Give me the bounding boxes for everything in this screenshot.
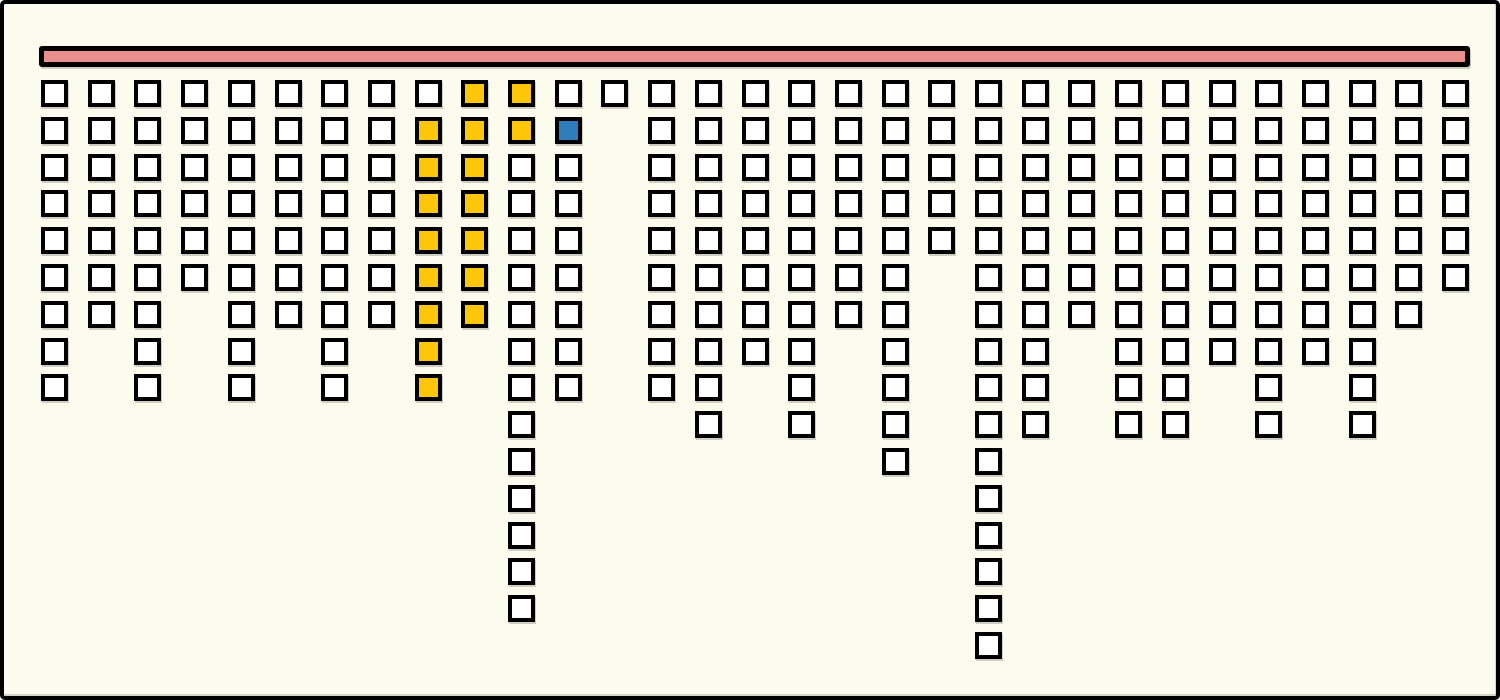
unit-square-col1-row5 (41, 227, 68, 254)
unit-square-col23-row3 (1068, 154, 1095, 181)
unit-square-col18-row5 (835, 227, 862, 254)
unit-square-col25-row9 (1162, 374, 1189, 401)
unit-square-col24-row2 (1115, 117, 1142, 144)
unit-square-col29-row4 (1349, 190, 1376, 217)
unit-square-col21-row16 (975, 632, 1002, 659)
unit-square-col24-row9 (1115, 374, 1142, 401)
unit-square-col6-row3 (275, 154, 302, 181)
unit-square-col29-row2 (1349, 117, 1376, 144)
unit-square-col7-row2 (321, 117, 348, 144)
unit-square-col22-row1 (1022, 80, 1049, 107)
unit-square-col26-row3 (1209, 154, 1236, 181)
unit-square-col19-row2 (882, 117, 909, 144)
unit-square-col7-row3 (321, 154, 348, 181)
unit-square-col25-row6 (1162, 264, 1189, 291)
unit-square-col17-row4 (788, 190, 815, 217)
unit-square-col9-row7 (415, 301, 442, 328)
unit-square-col28-row6 (1302, 264, 1329, 291)
unit-square-col7-row6 (321, 264, 348, 291)
unit-square-col24-row10 (1115, 411, 1142, 438)
unit-square-col8-row5 (368, 227, 395, 254)
unit-square-col15-row7 (695, 301, 722, 328)
unit-square-col5-row5 (228, 227, 255, 254)
unit-square-col12-row2 (555, 117, 582, 144)
unit-square-col3-row7 (134, 301, 161, 328)
unit-square-col17-row8 (788, 338, 815, 365)
unit-square-col21-row13 (975, 522, 1002, 549)
unit-square-col18-row2 (835, 117, 862, 144)
unit-square-col16-row5 (742, 227, 769, 254)
unit-square-col27-row7 (1255, 301, 1282, 328)
unit-square-col11-row8 (508, 338, 535, 365)
unit-square-col20-row5 (928, 227, 955, 254)
unit-square-col18-row6 (835, 264, 862, 291)
unit-square-col23-row5 (1068, 227, 1095, 254)
unit-square-col1-row7 (41, 301, 68, 328)
unit-square-col29-row7 (1349, 301, 1376, 328)
unit-square-col21-row1 (975, 80, 1002, 107)
unit-square-col13-row1 (601, 80, 628, 107)
unit-square-col2-row2 (88, 117, 115, 144)
unit-square-col11-row5 (508, 227, 535, 254)
unit-square-col10-row1 (461, 80, 488, 107)
unit-square-col19-row9 (882, 374, 909, 401)
unit-square-col3-row4 (134, 190, 161, 217)
unit-square-col9-row3 (415, 154, 442, 181)
unit-square-col24-row8 (1115, 338, 1142, 365)
unit-square-col5-row9 (228, 374, 255, 401)
unit-square-col27-row8 (1255, 338, 1282, 365)
unit-square-col3-row3 (134, 154, 161, 181)
unit-square-col16-row4 (742, 190, 769, 217)
unit-square-col19-row11 (882, 448, 909, 475)
unit-square-col22-row2 (1022, 117, 1049, 144)
unit-square-col19-row5 (882, 227, 909, 254)
unit-square-col9-row5 (415, 227, 442, 254)
unit-square-col14-row5 (648, 227, 675, 254)
unit-square-col29-row3 (1349, 154, 1376, 181)
unit-square-col1-row9 (41, 374, 68, 401)
unit-square-col26-row2 (1209, 117, 1236, 144)
unit-square-col22-row5 (1022, 227, 1049, 254)
unit-square-col27-row4 (1255, 190, 1282, 217)
unit-square-col17-row3 (788, 154, 815, 181)
unit-square-col21-row8 (975, 338, 1002, 365)
unit-square-col19-row6 (882, 264, 909, 291)
unit-square-col8-row2 (368, 117, 395, 144)
unit-square-col2-row1 (88, 80, 115, 107)
unit-square-col23-row4 (1068, 190, 1095, 217)
unit-square-col25-row8 (1162, 338, 1189, 365)
unit-square-col19-row10 (882, 411, 909, 438)
unit-square-col25-row1 (1162, 80, 1189, 107)
unit-square-col20-row3 (928, 154, 955, 181)
unit-square-col11-row12 (508, 485, 535, 512)
unit-square-col1-row8 (41, 338, 68, 365)
unit-square-col15-row5 (695, 227, 722, 254)
unit-square-col12-row8 (555, 338, 582, 365)
unit-square-col10-row4 (461, 190, 488, 217)
unit-square-col12-row5 (555, 227, 582, 254)
unit-square-col22-row3 (1022, 154, 1049, 181)
unit-square-col17-row10 (788, 411, 815, 438)
unit-square-col18-row1 (835, 80, 862, 107)
unit-square-col31-row2 (1442, 117, 1469, 144)
unit-square-col9-row8 (415, 338, 442, 365)
unit-square-col5-row6 (228, 264, 255, 291)
unit-square-col25-row3 (1162, 154, 1189, 181)
unit-square-col15-row8 (695, 338, 722, 365)
unit-square-col17-row1 (788, 80, 815, 107)
unit-square-col28-row2 (1302, 117, 1329, 144)
unit-square-col15-row10 (695, 411, 722, 438)
unit-square-col29-row8 (1349, 338, 1376, 365)
unit-square-col24-row7 (1115, 301, 1142, 328)
unit-square-col28-row3 (1302, 154, 1329, 181)
unit-square-col22-row8 (1022, 338, 1049, 365)
unit-square-col24-row5 (1115, 227, 1142, 254)
unit-square-col21-row5 (975, 227, 1002, 254)
unit-square-col21-row14 (975, 558, 1002, 585)
unit-square-col28-row8 (1302, 338, 1329, 365)
header-bar (39, 46, 1470, 67)
unit-square-col27-row6 (1255, 264, 1282, 291)
unit-square-col15-row2 (695, 117, 722, 144)
unit-square-col21-row6 (975, 264, 1002, 291)
unit-square-col24-row6 (1115, 264, 1142, 291)
unit-square-col31-row5 (1442, 227, 1469, 254)
unit-square-col5-row7 (228, 301, 255, 328)
unit-square-col21-row9 (975, 374, 1002, 401)
unit-square-col23-row7 (1068, 301, 1095, 328)
unit-square-col21-row2 (975, 117, 1002, 144)
unit-square-col19-row3 (882, 154, 909, 181)
unit-square-col5-row8 (228, 338, 255, 365)
unit-square-col21-row7 (975, 301, 1002, 328)
unit-square-col16-row2 (742, 117, 769, 144)
unit-square-col14-row4 (648, 190, 675, 217)
unit-square-col23-row2 (1068, 117, 1095, 144)
unit-square-col14-row6 (648, 264, 675, 291)
unit-square-col19-row4 (882, 190, 909, 217)
unit-square-col30-row7 (1395, 301, 1422, 328)
unit-square-col25-row7 (1162, 301, 1189, 328)
unit-square-col12-row3 (555, 154, 582, 181)
unit-square-col11-row1 (508, 80, 535, 107)
unit-square-col20-row4 (928, 190, 955, 217)
unit-square-col4-row3 (181, 154, 208, 181)
unit-square-col5-row3 (228, 154, 255, 181)
unit-square-col5-row4 (228, 190, 255, 217)
unit-square-col27-row5 (1255, 227, 1282, 254)
unit-square-col3-row6 (134, 264, 161, 291)
unit-square-col14-row9 (648, 374, 675, 401)
unit-square-col25-row5 (1162, 227, 1189, 254)
unit-square-col12-row1 (555, 80, 582, 107)
unit-square-col30-row1 (1395, 80, 1422, 107)
unit-square-col11-row9 (508, 374, 535, 401)
unit-square-col9-row4 (415, 190, 442, 217)
unit-square-col14-row8 (648, 338, 675, 365)
unit-square-col11-row10 (508, 411, 535, 438)
unit-square-col12-row9 (555, 374, 582, 401)
unit-square-col29-row1 (1349, 80, 1376, 107)
unit-square-col1-row2 (41, 117, 68, 144)
unit-square-col14-row2 (648, 117, 675, 144)
unit-square-col3-row9 (134, 374, 161, 401)
unit-square-col30-row2 (1395, 117, 1422, 144)
unit-square-col28-row4 (1302, 190, 1329, 217)
unit-square-col21-row3 (975, 154, 1002, 181)
unit-square-col30-row5 (1395, 227, 1422, 254)
unit-square-col17-row2 (788, 117, 815, 144)
unit-square-col24-row3 (1115, 154, 1142, 181)
unit-square-col25-row2 (1162, 117, 1189, 144)
unit-square-col6-row1 (275, 80, 302, 107)
unit-square-col21-row10 (975, 411, 1002, 438)
unit-square-col6-row4 (275, 190, 302, 217)
unit-square-col19-row7 (882, 301, 909, 328)
unit-square-col4-row4 (181, 190, 208, 217)
unit-square-col21-row15 (975, 595, 1002, 622)
unit-square-col4-row6 (181, 264, 208, 291)
unit-square-col7-row5 (321, 227, 348, 254)
unit-square-col9-row9 (415, 374, 442, 401)
unit-square-col3-row1 (134, 80, 161, 107)
unit-square-col4-row2 (181, 117, 208, 144)
unit-square-col16-row6 (742, 264, 769, 291)
unit-square-col26-row5 (1209, 227, 1236, 254)
unit-square-col21-row4 (975, 190, 1002, 217)
unit-square-col2-row6 (88, 264, 115, 291)
unit-square-col22-row4 (1022, 190, 1049, 217)
unit-square-col4-row5 (181, 227, 208, 254)
unit-square-col8-row6 (368, 264, 395, 291)
unit-square-col19-row1 (882, 80, 909, 107)
unit-square-col10-row5 (461, 227, 488, 254)
unit-square-col24-row1 (1115, 80, 1142, 107)
unit-square-col11-row15 (508, 595, 535, 622)
unit-square-col12-row7 (555, 301, 582, 328)
unit-square-col31-row1 (1442, 80, 1469, 107)
unit-square-col28-row5 (1302, 227, 1329, 254)
unit-square-col25-row10 (1162, 411, 1189, 438)
unit-square-col7-row8 (321, 338, 348, 365)
unit-square-col16-row7 (742, 301, 769, 328)
unit-square-col21-row12 (975, 485, 1002, 512)
unit-square-col25-row4 (1162, 190, 1189, 217)
unit-square-col2-row5 (88, 227, 115, 254)
unit-square-col15-row6 (695, 264, 722, 291)
unit-square-col15-row9 (695, 374, 722, 401)
unit-square-col8-row7 (368, 301, 395, 328)
unit-square-col18-row3 (835, 154, 862, 181)
unit-square-col22-row7 (1022, 301, 1049, 328)
unit-square-col15-row3 (695, 154, 722, 181)
unit-square-col3-row8 (134, 338, 161, 365)
unit-square-col11-row6 (508, 264, 535, 291)
unit-square-col22-row9 (1022, 374, 1049, 401)
unit-square-col18-row7 (835, 301, 862, 328)
unit-square-col22-row6 (1022, 264, 1049, 291)
unit-square-col17-row5 (788, 227, 815, 254)
unit-square-col26-row6 (1209, 264, 1236, 291)
unit-square-col3-row5 (134, 227, 161, 254)
unit-square-col29-row6 (1349, 264, 1376, 291)
unit-square-col16-row1 (742, 80, 769, 107)
unit-square-col27-row2 (1255, 117, 1282, 144)
chart-canvas (0, 0, 1500, 700)
unit-square-col26-row7 (1209, 301, 1236, 328)
unit-square-col14-row3 (648, 154, 675, 181)
unit-square-col29-row5 (1349, 227, 1376, 254)
unit-square-col23-row6 (1068, 264, 1095, 291)
unit-square-col1-row6 (41, 264, 68, 291)
unit-square-col17-row9 (788, 374, 815, 401)
unit-square-col27-row10 (1255, 411, 1282, 438)
unit-square-col1-row1 (41, 80, 68, 107)
unit-square-col26-row1 (1209, 80, 1236, 107)
unit-square-col27-row9 (1255, 374, 1282, 401)
unit-square-col6-row5 (275, 227, 302, 254)
unit-square-col22-row10 (1022, 411, 1049, 438)
unit-square-col28-row7 (1302, 301, 1329, 328)
unit-square-col29-row9 (1349, 374, 1376, 401)
unit-square-col7-row9 (321, 374, 348, 401)
unit-square-col1-row3 (41, 154, 68, 181)
unit-square-col6-row7 (275, 301, 302, 328)
unit-square-col5-row2 (228, 117, 255, 144)
unit-square-col27-row3 (1255, 154, 1282, 181)
unit-square-col17-row7 (788, 301, 815, 328)
unit-square-col9-row1 (415, 80, 442, 107)
unit-square-col8-row3 (368, 154, 395, 181)
unit-square-col15-row1 (695, 80, 722, 107)
unit-square-col20-row2 (928, 117, 955, 144)
unit-square-col14-row7 (648, 301, 675, 328)
unit-square-col27-row1 (1255, 80, 1282, 107)
unit-square-col31-row6 (1442, 264, 1469, 291)
unit-square-col11-row13 (508, 522, 535, 549)
unit-square-col10-row7 (461, 301, 488, 328)
unit-square-col11-row7 (508, 301, 535, 328)
unit-square-col31-row4 (1442, 190, 1469, 217)
unit-square-col29-row10 (1349, 411, 1376, 438)
unit-square-col9-row6 (415, 264, 442, 291)
unit-square-col16-row8 (742, 338, 769, 365)
unit-square-col11-row4 (508, 190, 535, 217)
unit-square-col15-row4 (695, 190, 722, 217)
unit-square-col18-row4 (835, 190, 862, 217)
unit-square-col8-row1 (368, 80, 395, 107)
unit-square-col14-row1 (648, 80, 675, 107)
unit-square-col12-row4 (555, 190, 582, 217)
unit-square-col10-row2 (461, 117, 488, 144)
unit-square-col21-row11 (975, 448, 1002, 475)
unit-square-col28-row1 (1302, 80, 1329, 107)
unit-square-col11-row11 (508, 448, 535, 475)
unit-square-col7-row7 (321, 301, 348, 328)
unit-square-col19-row8 (882, 338, 909, 365)
unit-square-col30-row6 (1395, 264, 1422, 291)
unit-square-col11-row3 (508, 154, 535, 181)
unit-square-col12-row6 (555, 264, 582, 291)
unit-square-col3-row2 (134, 117, 161, 144)
unit-square-col24-row4 (1115, 190, 1142, 217)
unit-square-col2-row7 (88, 301, 115, 328)
unit-square-col8-row4 (368, 190, 395, 217)
unit-square-col11-row2 (508, 117, 535, 144)
unit-square-col23-row1 (1068, 80, 1095, 107)
unit-square-col11-row14 (508, 558, 535, 585)
unit-square-col31-row3 (1442, 154, 1469, 181)
unit-square-col5-row1 (228, 80, 255, 107)
unit-square-col10-row6 (461, 264, 488, 291)
unit-square-col2-row3 (88, 154, 115, 181)
unit-square-col26-row8 (1209, 338, 1236, 365)
unit-square-col20-row1 (928, 80, 955, 107)
unit-square-col30-row3 (1395, 154, 1422, 181)
unit-square-col30-row4 (1395, 190, 1422, 217)
unit-square-col6-row6 (275, 264, 302, 291)
unit-square-col10-row3 (461, 154, 488, 181)
unit-square-col2-row4 (88, 190, 115, 217)
unit-square-col7-row4 (321, 190, 348, 217)
unit-square-col6-row2 (275, 117, 302, 144)
unit-square-col1-row4 (41, 190, 68, 217)
unit-square-col16-row3 (742, 154, 769, 181)
unit-square-col26-row4 (1209, 190, 1236, 217)
unit-square-col4-row1 (181, 80, 208, 107)
unit-square-col17-row6 (788, 264, 815, 291)
unit-square-col9-row2 (415, 117, 442, 144)
unit-square-col7-row1 (321, 80, 348, 107)
